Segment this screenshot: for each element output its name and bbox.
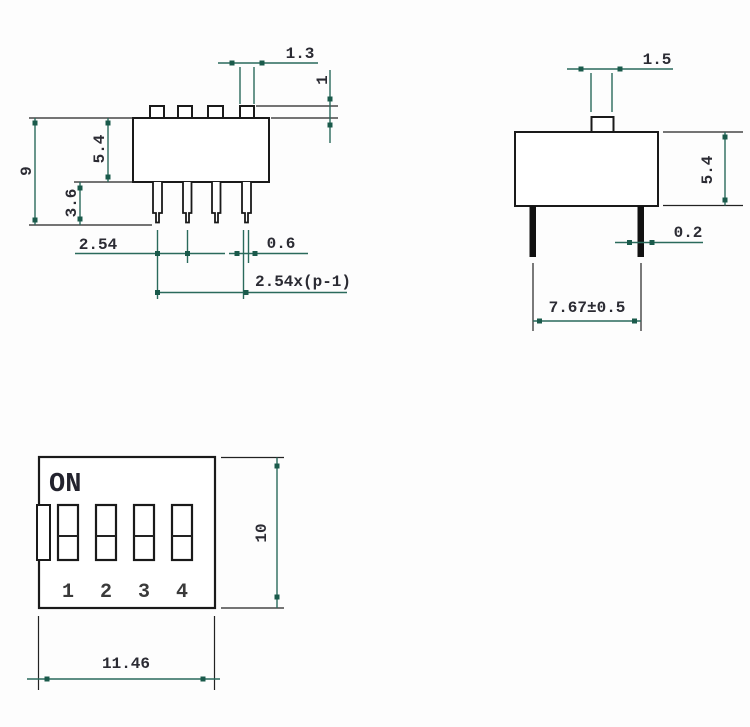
- bottom-view: ON 1 2 3 4 10: [27, 457, 284, 690]
- front-tab-4: [240, 106, 254, 118]
- switch-4: [172, 505, 192, 560]
- front-tab-3: [208, 106, 223, 118]
- dim-label-pin-row-span: 7.67±0.5: [549, 299, 626, 317]
- dim-label-pin-thickness: 0.2: [674, 224, 703, 242]
- side-dim-pin-thickness: 0.2: [615, 224, 703, 245]
- front-dim-body-height: 5.4: [74, 118, 133, 182]
- side-view: 1.5 5.4 0.2 7.67±0.5: [515, 51, 743, 331]
- engineering-drawing: 1.3 1 9 5.4: [0, 0, 750, 727]
- front-pin-2: [183, 182, 192, 223]
- side-pin-right: [638, 206, 645, 257]
- side-dim-actuator-width: 1.5: [567, 51, 673, 112]
- position-label-2: 2: [100, 581, 112, 604]
- on-label: ON: [49, 470, 81, 500]
- dim-label-tab-width: 1.3: [286, 45, 315, 63]
- switch-partial: [37, 505, 50, 560]
- position-label-1: 1: [62, 581, 74, 604]
- front-pin-3: [212, 182, 221, 223]
- drawing-svg: 1.3 1 9 5.4: [0, 0, 750, 727]
- dim-label-front-body-height: 5.4: [91, 134, 109, 163]
- dim-label-bottom-body-width: 11.46: [102, 655, 150, 673]
- bottom-dim-body-height: 10: [221, 458, 284, 609]
- side-pin-left: [530, 206, 537, 257]
- dim-label-pin-pitch: 2.54: [79, 236, 118, 254]
- switch-2: [96, 505, 116, 560]
- dim-label-side-body-height: 5.4: [699, 155, 717, 184]
- dim-label-pin-span: 2.54x(p-1): [255, 273, 351, 291]
- front-dim-pin-span: 2.54x(p-1): [155, 273, 351, 295]
- front-tab-1: [150, 106, 164, 118]
- front-pin-1: [153, 182, 162, 223]
- dim-label-total-height: 9: [18, 166, 36, 176]
- front-pin-4: [242, 182, 251, 223]
- position-label-3: 3: [138, 581, 150, 604]
- bottom-dim-body-width: 11.46: [27, 616, 220, 690]
- front-dim-total-height: 9: [18, 118, 152, 225]
- switch-3: [134, 505, 154, 560]
- side-dim-pin-row-span: 7.67±0.5: [533, 263, 641, 331]
- dim-label-pin-length: 3.6: [63, 189, 81, 218]
- side-dim-body-height: 5.4: [663, 132, 743, 206]
- dim-label-tab-height: 1: [314, 75, 332, 85]
- dim-label-actuator-width: 1.5: [643, 51, 672, 69]
- position-label-4: 4: [176, 581, 188, 604]
- dim-label-bottom-body-height: 10: [253, 523, 271, 542]
- front-dim-pin-length: 3.6: [63, 182, 83, 225]
- front-view: 1.3 1 9 5.4: [18, 45, 351, 299]
- front-tab-2: [178, 106, 192, 118]
- side-actuator-tab: [592, 117, 614, 132]
- front-dim-tab-width: 1.3: [218, 45, 318, 104]
- switch-1: [58, 505, 78, 560]
- front-body: [133, 118, 269, 182]
- side-body: [515, 132, 658, 206]
- dim-label-pin-width: 0.6: [267, 235, 296, 253]
